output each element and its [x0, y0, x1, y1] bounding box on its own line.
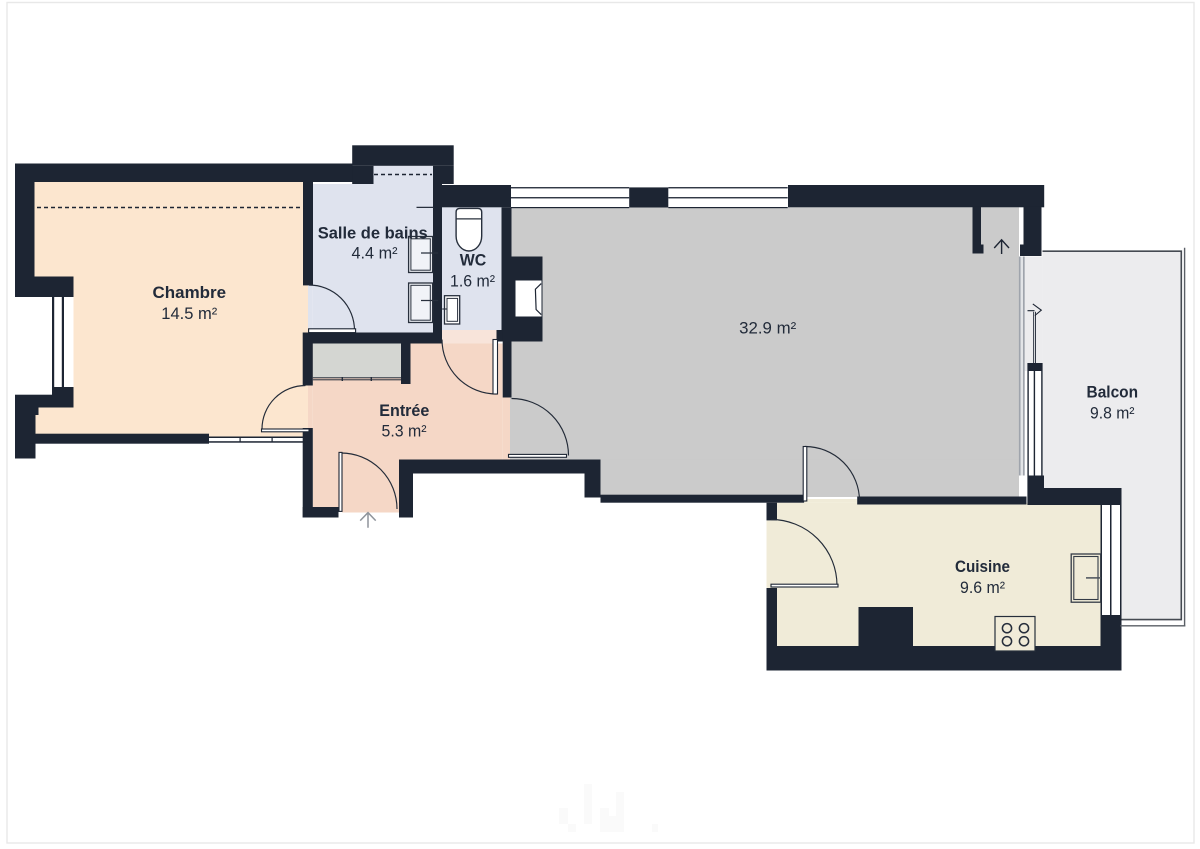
- svg-text:Chambre: Chambre: [153, 284, 227, 302]
- svg-text:14.5 m²: 14.5 m²: [161, 305, 218, 323]
- svg-text:Cuisine: Cuisine: [955, 558, 1010, 576]
- svg-text:Salle de bains: Salle de bains: [318, 224, 428, 242]
- svg-text:Balcon: Balcon: [1087, 384, 1139, 402]
- svg-text:32.9 m²: 32.9 m²: [739, 320, 797, 338]
- svg-text:1.6 m²: 1.6 m²: [450, 272, 496, 290]
- svg-text:4.4 m²: 4.4 m²: [352, 244, 399, 262]
- svg-text:9.6 m²: 9.6 m²: [960, 579, 1006, 597]
- svg-text:WC: WC: [460, 252, 487, 270]
- svg-text:9.8 m²: 9.8 m²: [1090, 405, 1135, 423]
- svg-text:Entrée: Entrée: [379, 402, 429, 420]
- svg-text:5.3 m²: 5.3 m²: [382, 422, 428, 440]
